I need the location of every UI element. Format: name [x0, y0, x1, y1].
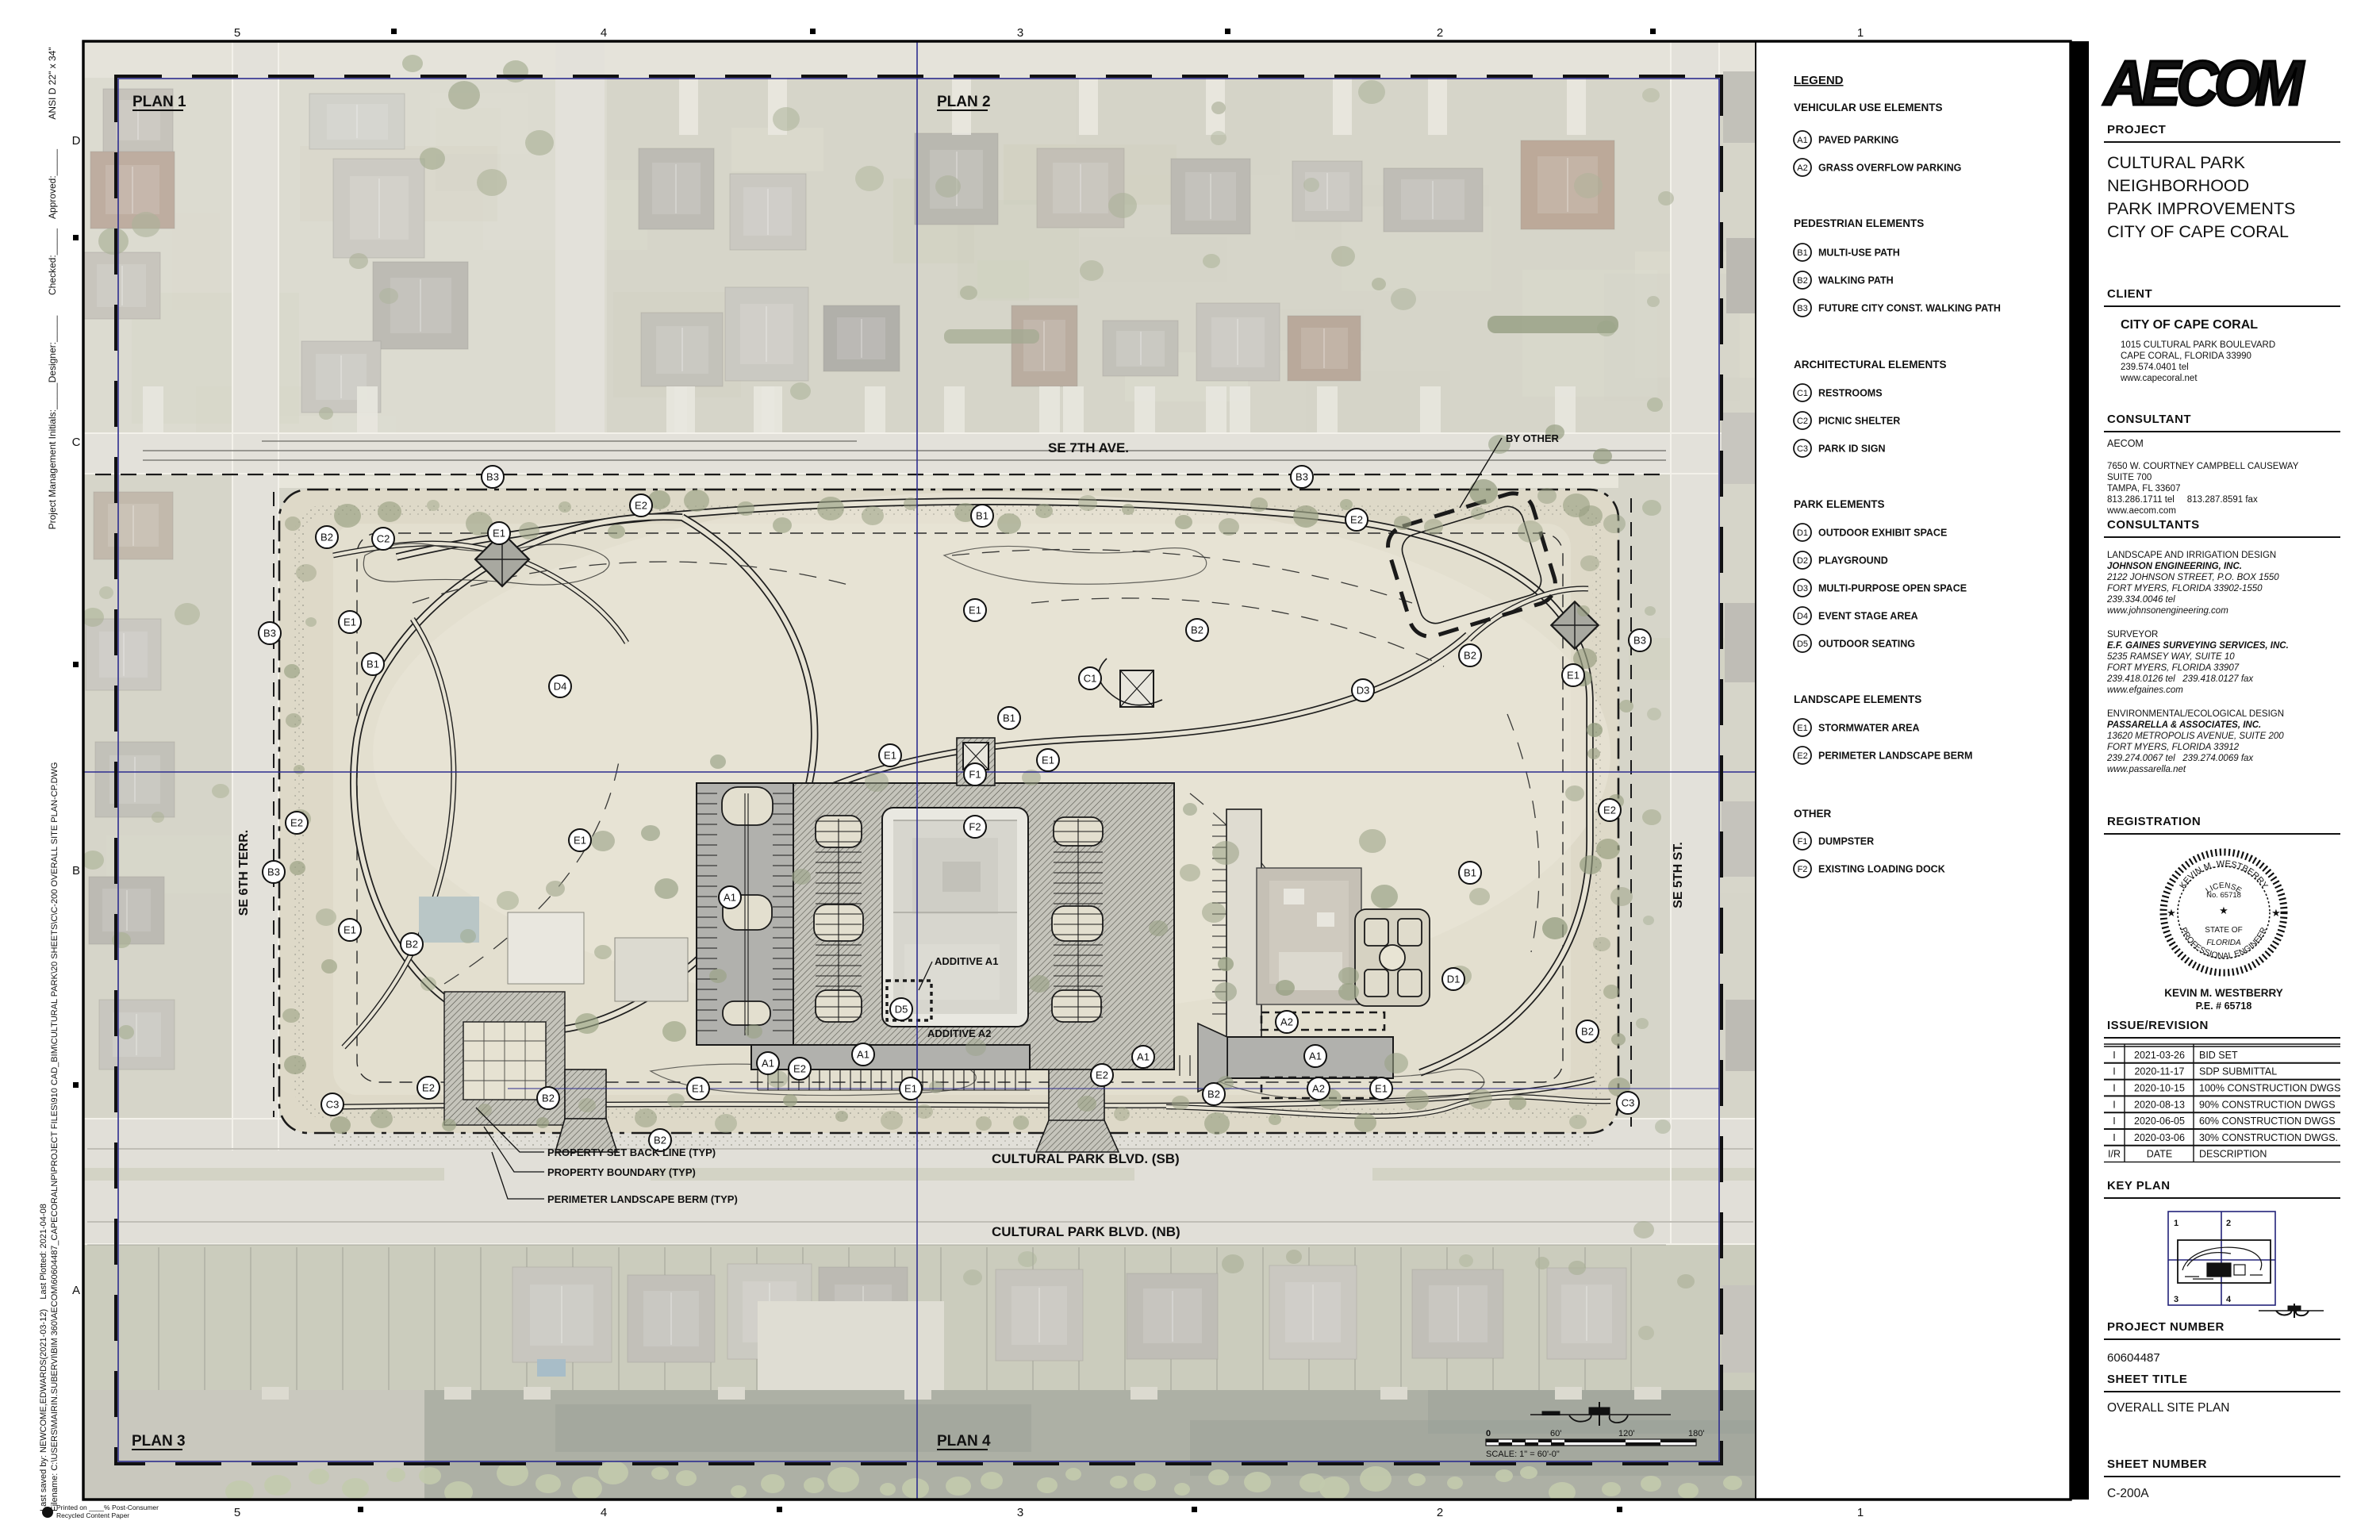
svg-text:B3: B3	[267, 866, 280, 878]
svg-text:B2: B2	[542, 1093, 555, 1104]
svg-text:B1: B1	[1003, 712, 1015, 724]
svg-text:239.574.0401 tel: 239.574.0401 tel	[2121, 363, 2189, 372]
svg-text:GRASS OVERFLOW PARKING: GRASS OVERFLOW PARKING	[1818, 163, 1961, 174]
svg-text:EXISTING LOADING DOCK: EXISTING LOADING DOCK	[1818, 864, 1945, 875]
svg-text:OUTDOOR EXHIBIT SPACE: OUTDOOR EXHIBIT SPACE	[1818, 528, 1947, 539]
svg-text:I: I	[2113, 1132, 2115, 1143]
svg-text:PLAN 3: PLAN 3	[132, 1433, 186, 1450]
svg-text:PAVED PARKING: PAVED PARKING	[1818, 135, 1898, 146]
svg-text:DESCRIPTION: DESCRIPTION	[2199, 1149, 2267, 1160]
svg-text:E1: E1	[1042, 755, 1054, 766]
svg-text:F2: F2	[969, 821, 981, 833]
svg-text:ENVIRONMENTAL/ECOLOGICAL DESIG: ENVIRONMENTAL/ECOLOGICAL DESIGN	[2107, 709, 2284, 719]
svg-text:OTHER: OTHER	[1794, 808, 1832, 820]
svg-text:LEGEND: LEGEND	[1794, 74, 1844, 87]
svg-text:1015 CULTURAL PARK BOULEVARD: 1015 CULTURAL PARK BOULEVARD	[2121, 340, 2275, 350]
svg-text:Checked:_____: Checked:_____	[47, 229, 58, 295]
svg-text:E1: E1	[969, 605, 981, 616]
svg-text:Last saved by: NEWCOME,EDWARDS: Last saved by: NEWCOME,EDWARDS(2021-03-1…	[39, 1204, 48, 1511]
svg-text:PLAN 4: PLAN 4	[937, 1433, 991, 1450]
svg-text:FORT MYERS, FLORIDA 33902-1550: FORT MYERS, FLORIDA 33902-1550	[2107, 584, 2263, 593]
svg-text:3: 3	[2174, 1295, 2178, 1304]
svg-text:BY OTHER: BY OTHER	[1506, 432, 1560, 444]
svg-text:Filename: C:\USERS\MAIRIN.SUBE: Filename: C:\USERS\MAIRIN.SUBERVI\BIM 36…	[50, 762, 59, 1511]
svg-text:NEIGHBORHOOD: NEIGHBORHOOD	[2107, 176, 2249, 195]
svg-text:www.capecoral.net: www.capecoral.net	[2120, 374, 2198, 383]
svg-text:AECOM: AECOM	[2107, 438, 2144, 449]
svg-text:SE 6TH TERR.: SE 6TH TERR.	[237, 830, 251, 916]
svg-text:E1: E1	[1567, 670, 1580, 682]
svg-text:E2: E2	[793, 1063, 806, 1075]
svg-text:100% CONSTRUCTION DWGS: 100% CONSTRUCTION DWGS	[2199, 1083, 2341, 1094]
svg-text:4: 4	[601, 26, 607, 40]
svg-text:OUTDOOR SEATING: OUTDOOR SEATING	[1818, 639, 1915, 650]
svg-text:E1: E1	[1375, 1083, 1388, 1095]
svg-text:PERIMETER LANDSCAPE BERM (TYP): PERIMETER LANDSCAPE BERM (TYP)	[547, 1193, 738, 1205]
svg-text:CONSULTANTS: CONSULTANTS	[2107, 518, 2200, 532]
svg-text:MULTI-USE PATH: MULTI-USE PATH	[1818, 248, 1900, 259]
svg-text:MULTI-PURPOSE OPEN SPACE: MULTI-PURPOSE OPEN SPACE	[1818, 583, 1967, 594]
svg-text:7650 W. COURTNEY CAMPBELL CAUS: 7650 W. COURTNEY CAMPBELL CAUSEWAY	[2107, 462, 2299, 471]
svg-text:CULTURAL PARK BLVD. (NB): CULTURAL PARK BLVD. (NB)	[992, 1224, 1180, 1239]
svg-text:B3: B3	[1633, 635, 1646, 647]
svg-text:B2: B2	[654, 1135, 666, 1146]
svg-text:E1: E1	[493, 528, 505, 540]
svg-text:A2: A2	[1312, 1083, 1325, 1095]
svg-text:JOHNSON ENGINEERING, INC.: JOHNSON ENGINEERING, INC.	[2107, 562, 2242, 571]
svg-text:STORMWATER AREA: STORMWATER AREA	[1818, 723, 1920, 734]
svg-text:I: I	[2113, 1083, 2115, 1094]
svg-text:PARK IMPROVEMENTS: PARK IMPROVEMENTS	[2107, 199, 2295, 218]
svg-text:SHEET NUMBER: SHEET NUMBER	[2107, 1457, 2207, 1471]
svg-text:E2: E2	[635, 500, 647, 512]
svg-text:B2: B2	[321, 532, 333, 543]
svg-text:A1: A1	[762, 1058, 774, 1070]
svg-text:KEY PLAN: KEY PLAN	[2107, 1179, 2171, 1192]
svg-text:B3: B3	[263, 628, 276, 639]
svg-text:I: I	[2113, 1066, 2115, 1077]
svg-text:SE 7TH AVE.: SE 7TH AVE.	[1048, 440, 1129, 455]
svg-text:813.286.1711 tel 813.287.8: 813.286.1711 tel 813.287.8591 fax	[2107, 495, 2258, 505]
svg-text:RESTROOMS: RESTROOMS	[1818, 388, 1883, 399]
svg-text:SUITE 700: SUITE 700	[2107, 473, 2152, 482]
svg-text:B1: B1	[1797, 248, 1807, 258]
svg-text:Recycled Content Paper: Recycled Content Paper	[56, 1511, 129, 1519]
svg-text:3: 3	[1017, 26, 1023, 40]
svg-text:60': 60'	[1550, 1429, 1561, 1438]
svg-text:I: I	[2113, 1116, 2115, 1127]
svg-text:E1: E1	[574, 835, 586, 847]
svg-text:PLAYGROUND: PLAYGROUND	[1818, 555, 1888, 566]
svg-text:Designer:_____: Designer:_____	[47, 315, 58, 382]
svg-text:D1: D1	[1447, 974, 1461, 985]
svg-text:E2: E2	[1350, 514, 1363, 526]
svg-text:www.johnsonengineering.com: www.johnsonengineering.com	[2107, 606, 2228, 616]
svg-text:LANDSCAPE AND IRRIGATION DESIG: LANDSCAPE AND IRRIGATION DESIGN	[2107, 551, 2276, 560]
svg-text:♻: ♻	[46, 1511, 52, 1519]
svg-text:C1: C1	[1084, 673, 1097, 685]
svg-text:5: 5	[234, 1506, 240, 1519]
svg-text:KEVIN M. WESTBERRY: KEVIN M. WESTBERRY	[2164, 987, 2283, 999]
svg-text:C3: C3	[1622, 1097, 1635, 1109]
svg-text:E1: E1	[344, 924, 356, 936]
svg-text:E1: E1	[344, 616, 356, 628]
svg-text:No. 65718: No. 65718	[2206, 891, 2241, 900]
svg-text:Printed on ____% Post-Consumer: Printed on ____% Post-Consumer	[56, 1504, 159, 1511]
svg-text:B1: B1	[1464, 867, 1476, 879]
svg-text:B2: B2	[1581, 1026, 1594, 1038]
svg-text:ISSUE/REVISION: ISSUE/REVISION	[2107, 1019, 2209, 1032]
svg-text:PERIMETER LANDSCAPE BERM: PERIMETER LANDSCAPE BERM	[1818, 751, 1972, 762]
svg-text:ADDITIVE A1: ADDITIVE A1	[935, 955, 998, 967]
svg-text:PICNIC SHELTER: PICNIC SHELTER	[1818, 416, 1900, 427]
svg-text:www.efgaines.com: www.efgaines.com	[2107, 686, 2183, 695]
svg-text:4: 4	[601, 1506, 607, 1519]
svg-text:1: 1	[1857, 1506, 1864, 1519]
svg-text:D2: D2	[1797, 556, 1808, 566]
svg-text:P.E. # 65718: P.E. # 65718	[2196, 1000, 2252, 1012]
svg-text:VEHICULAR USE ELEMENTS: VEHICULAR USE ELEMENTS	[1794, 102, 1943, 113]
svg-text:B3: B3	[1296, 471, 1308, 483]
svg-text:PROJECT NUMBER: PROJECT NUMBER	[2107, 1320, 2225, 1334]
svg-text:2020-06-05: 2020-06-05	[2134, 1116, 2185, 1127]
svg-text:ANSI D 22" x 34": ANSI D 22" x 34"	[47, 47, 58, 119]
svg-text:A1: A1	[1309, 1050, 1322, 1062]
svg-text:E2: E2	[290, 817, 303, 829]
svg-text:A1: A1	[724, 892, 736, 904]
svg-text:B3: B3	[1797, 304, 1807, 313]
svg-text:SDP SUBMITTAL: SDP SUBMITTAL	[2199, 1066, 2277, 1077]
svg-text:2020-11-17: 2020-11-17	[2134, 1066, 2184, 1077]
svg-text:E1: E1	[692, 1083, 704, 1095]
svg-text:2020-08-13: 2020-08-13	[2134, 1099, 2185, 1110]
svg-text:PARK ELEMENTS: PARK ELEMENTS	[1794, 498, 1885, 510]
svg-text:C2: C2	[377, 533, 390, 545]
svg-text:2020-03-06: 2020-03-06	[2134, 1132, 2185, 1143]
svg-text:LANDSCAPE ELEMENTS: LANDSCAPE ELEMENTS	[1794, 693, 1921, 705]
svg-text:E1: E1	[884, 750, 896, 762]
svg-text:60604487: 60604487	[2107, 1351, 2160, 1365]
svg-text:D5: D5	[895, 1004, 908, 1016]
svg-text:DUMPSTER: DUMPSTER	[1818, 836, 1874, 847]
svg-text:CULTURAL PARK BLVD. (SB): CULTURAL PARK BLVD. (SB)	[992, 1151, 1180, 1166]
svg-text:239.274.0067 tel 239.274.006: 239.274.0067 tel 239.274.0069 fax	[2106, 754, 2254, 763]
svg-text:SURVEYOR: SURVEYOR	[2107, 630, 2158, 639]
svg-text:B2: B2	[1207, 1089, 1220, 1100]
svg-text:E1: E1	[1797, 724, 1807, 733]
svg-text:Project Management Initials:__: Project Management Initials:_____	[47, 382, 58, 529]
svg-text:2: 2	[2226, 1219, 2231, 1228]
svg-text:2020-10-15: 2020-10-15	[2134, 1083, 2185, 1094]
svg-text:2122 JOHNSON STREET, P.O. BOX: 2122 JOHNSON STREET, P.O. BOX 1550	[2106, 573, 2279, 582]
svg-text:B: B	[72, 864, 80, 878]
svg-text:D1: D1	[1797, 528, 1808, 538]
svg-text:www.passarella.net: www.passarella.net	[2107, 765, 2186, 774]
svg-text:CAPE CORAL, FLORIDA 33990: CAPE CORAL, FLORIDA 33990	[2121, 351, 2251, 361]
svg-text:FORT MYERS, FLORIDA 33907: FORT MYERS, FLORIDA 33907	[2107, 663, 2240, 673]
svg-text:E2: E2	[1797, 751, 1807, 761]
svg-text:TAMPA, FL 33607: TAMPA, FL 33607	[2107, 484, 2180, 493]
svg-text:ARCHITECTURAL ELEMENTS: ARCHITECTURAL ELEMENTS	[1794, 359, 1947, 371]
svg-text:CITY OF CAPE CORAL: CITY OF CAPE CORAL	[2121, 318, 2258, 332]
svg-text:I: I	[2113, 1050, 2115, 1061]
svg-text:Approved:_____: Approved:_____	[47, 149, 58, 219]
svg-text:C1: C1	[1797, 389, 1808, 398]
svg-text:D4: D4	[554, 681, 567, 693]
svg-text:PEDESTRIAN ELEMENTS: PEDESTRIAN ELEMENTS	[1794, 217, 1924, 229]
svg-text:B3: B3	[486, 471, 499, 483]
svg-text:FLORIDA: FLORIDA	[2206, 939, 2241, 947]
svg-text:B1: B1	[367, 659, 379, 670]
svg-text:239.334.0046 tel: 239.334.0046 tel	[2106, 595, 2175, 605]
svg-text:3: 3	[1017, 1506, 1023, 1519]
svg-text:4: 4	[2226, 1295, 2232, 1304]
svg-text:PLAN 2: PLAN 2	[937, 94, 991, 110]
svg-text:C2: C2	[1797, 417, 1808, 426]
svg-text:2: 2	[1437, 26, 1443, 40]
svg-text:D3: D3	[1357, 685, 1370, 697]
svg-text:PARK ID SIGN: PARK ID SIGN	[1818, 444, 1886, 455]
svg-text:A1: A1	[1797, 136, 1807, 145]
svg-text:STATE OF: STATE OF	[2205, 926, 2242, 935]
svg-text:0: 0	[1486, 1429, 1491, 1438]
svg-text:D: D	[72, 134, 81, 148]
svg-text:BID SET: BID SET	[2199, 1050, 2238, 1061]
svg-text:B2: B2	[405, 939, 418, 950]
svg-text:13620 METROPOLIS AVENUE, SUITE: 13620 METROPOLIS AVENUE, SUITE 200	[2107, 732, 2284, 741]
svg-text:C3: C3	[1797, 444, 1808, 454]
svg-text:E1: E1	[904, 1083, 917, 1095]
svg-text:E2: E2	[422, 1082, 435, 1094]
svg-text:239.418.0126 tel 239.418.012: 239.418.0126 tel 239.418.0127 fax	[2106, 674, 2254, 684]
svg-text:WALKING PATH: WALKING PATH	[1818, 275, 1894, 286]
svg-text:AECOM: AECOM	[2102, 48, 2305, 119]
svg-text:A2: A2	[1797, 163, 1807, 173]
svg-text:A1: A1	[857, 1049, 869, 1061]
svg-text:1: 1	[2174, 1219, 2178, 1228]
svg-text:PROJECT: PROJECT	[2107, 123, 2166, 136]
svg-text:D5: D5	[1797, 639, 1808, 649]
svg-text:CONSULTANT: CONSULTANT	[2107, 413, 2191, 426]
svg-text:60% CONSTRUCTION DWGS: 60% CONSTRUCTION DWGS	[2199, 1116, 2336, 1127]
svg-text:www.aecom.com: www.aecom.com	[2106, 506, 2176, 516]
svg-text:30% CONSTRUCTION DWGS.: 30% CONSTRUCTION DWGS.	[2199, 1132, 2338, 1143]
svg-text:FORT MYERS, FLORIDA 33912: FORT MYERS, FLORIDA 33912	[2107, 743, 2240, 752]
svg-text:★: ★	[2271, 907, 2281, 919]
svg-text:PROPERTY BOUNDARY (TYP): PROPERTY BOUNDARY (TYP)	[547, 1166, 696, 1178]
svg-text:5: 5	[234, 26, 240, 40]
svg-text:F1: F1	[1798, 837, 1808, 847]
svg-text:A1: A1	[1137, 1051, 1150, 1063]
svg-text:180': 180'	[1688, 1429, 1704, 1438]
svg-text:90% CONSTRUCTION DWGS: 90% CONSTRUCTION DWGS	[2199, 1099, 2336, 1110]
svg-text:D3: D3	[1797, 584, 1808, 593]
svg-text:OVERALL SITE PLAN: OVERALL SITE PLAN	[2107, 1401, 2230, 1415]
svg-text:B2: B2	[1464, 650, 1476, 662]
svg-text:C: C	[72, 436, 81, 449]
svg-text:DATE: DATE	[2147, 1149, 2172, 1160]
svg-text:★: ★	[2167, 907, 2176, 919]
svg-text:5235 RAMSEY WAY, SUITE 10: 5235 RAMSEY WAY, SUITE 10	[2107, 652, 2235, 662]
svg-text:2: 2	[1437, 1506, 1443, 1519]
svg-text:B2: B2	[1797, 276, 1807, 286]
svg-text:SHEET TITLE: SHEET TITLE	[2107, 1373, 2187, 1386]
svg-text:SCALE: 1" = 60'-0": SCALE: 1" = 60'-0"	[1486, 1450, 1560, 1459]
svg-text:ADDITIVE A2: ADDITIVE A2	[927, 1027, 991, 1039]
svg-text:E.F. GAINES SURVEYING SERVICES: E.F. GAINES SURVEYING SERVICES, INC.	[2107, 641, 2289, 651]
svg-text:F1: F1	[969, 769, 981, 781]
svg-text:CLIENT: CLIENT	[2107, 287, 2152, 301]
svg-text:E2: E2	[1096, 1070, 1108, 1081]
svg-text:E2: E2	[1603, 805, 1616, 816]
svg-text:A2: A2	[1280, 1016, 1293, 1028]
svg-text:PROPERTY SET BACK LINE (TYP): PROPERTY SET BACK LINE (TYP)	[547, 1146, 716, 1158]
svg-text:I/R: I/R	[2108, 1149, 2121, 1160]
svg-text:CULTURAL PARK: CULTURAL PARK	[2107, 153, 2246, 172]
svg-text:★: ★	[2219, 904, 2228, 916]
svg-text:120': 120'	[1618, 1429, 1634, 1438]
svg-text:SE 5TH ST.: SE 5TH ST.	[1672, 842, 1685, 908]
svg-text:PASSARELLA & ASSOCIATES, INC.: PASSARELLA & ASSOCIATES, INC.	[2107, 720, 2261, 730]
svg-text:1: 1	[1857, 26, 1864, 40]
svg-text:A: A	[72, 1284, 80, 1297]
svg-text:B2: B2	[1191, 624, 1203, 636]
svg-text:F2: F2	[1798, 865, 1808, 874]
svg-text:CITY OF CAPE CORAL: CITY OF CAPE CORAL	[2107, 222, 2289, 241]
svg-text:I: I	[2113, 1099, 2115, 1110]
svg-text:C-200A: C-200A	[2107, 1487, 2149, 1500]
svg-text:C3: C3	[326, 1099, 340, 1111]
svg-text:PLAN 1: PLAN 1	[132, 94, 186, 110]
svg-text:D4: D4	[1797, 612, 1808, 621]
svg-text:FUTURE CITY CONST. WALKING PAT: FUTURE CITY CONST. WALKING PATH	[1818, 303, 2001, 314]
svg-text:B1: B1	[976, 510, 988, 522]
svg-text:REGISTRATION: REGISTRATION	[2107, 815, 2201, 828]
svg-text:2021-03-26: 2021-03-26	[2134, 1050, 2185, 1061]
svg-text:EVENT STAGE AREA: EVENT STAGE AREA	[1818, 611, 1918, 622]
